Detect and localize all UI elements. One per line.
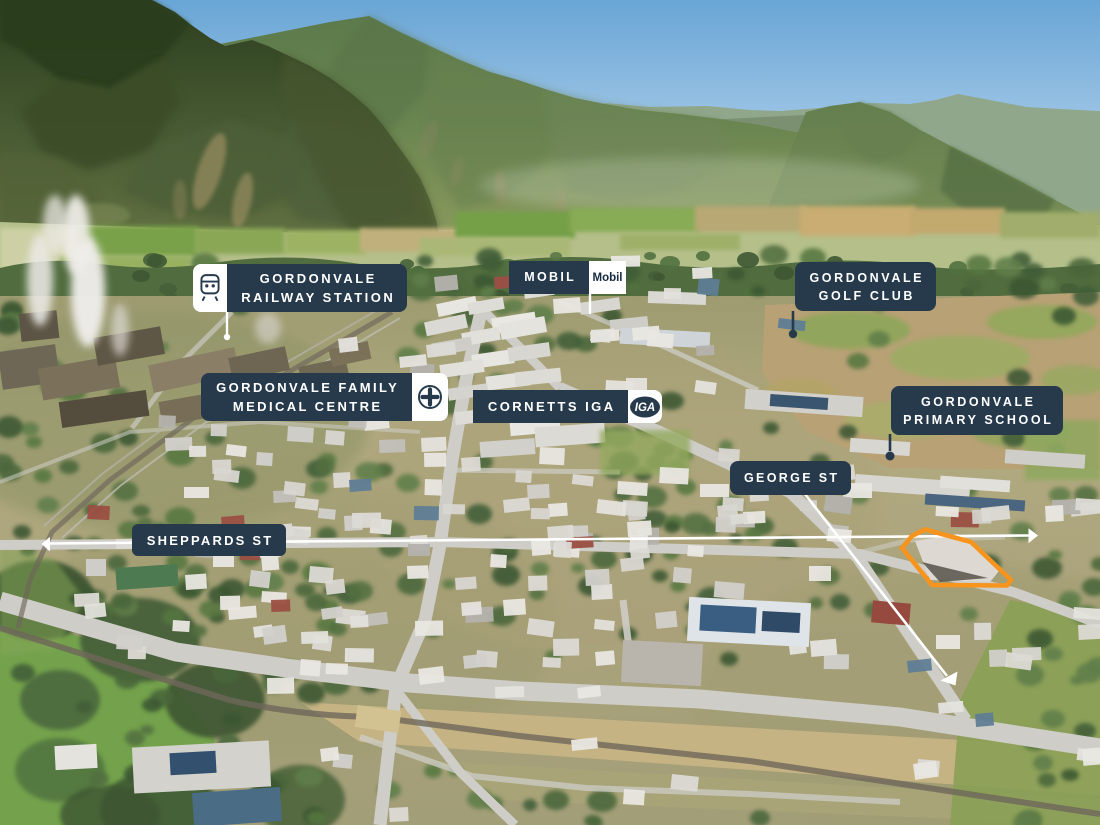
- svg-text:IGA: IGA: [635, 402, 655, 414]
